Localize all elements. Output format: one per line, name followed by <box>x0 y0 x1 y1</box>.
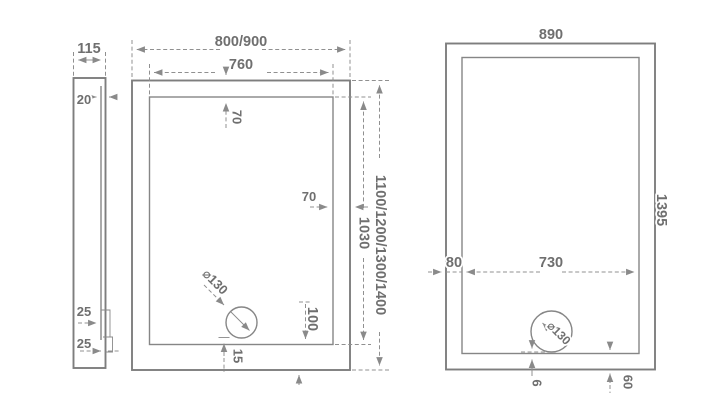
side-profile-view: 115 20 25 25 <box>74 41 121 368</box>
drain-edge-label: 15 <box>230 349 245 363</box>
tray890-outer-length-label: 1395 <box>653 194 669 226</box>
profile-step-upper-label: 25 <box>77 304 91 319</box>
tray890-outer-width-label: 890 <box>539 27 563 43</box>
tray890-outer-outline <box>446 44 655 370</box>
plan-view-890: 890 1395 80 730 ⌀130 6 60 <box>428 27 669 393</box>
profile-step-lower-outline <box>103 337 113 352</box>
drain-diameter-label: ⌀130 <box>200 266 231 297</box>
drain890-diameter-label: ⌀130 <box>544 319 573 348</box>
inner-width-label: 760 <box>229 57 253 73</box>
profile-thickness-label: 20 <box>77 92 91 107</box>
outer-length-label: 1100/1200/1300/1400 <box>372 175 388 315</box>
technical-drawing-canvas: 115 20 25 25 800/900 760 70 70 <box>0 0 711 418</box>
drain-diameter-line <box>231 312 250 331</box>
profile-step-lower-label: 25 <box>77 336 91 351</box>
rim-top-label: 70 <box>229 110 244 124</box>
rim-side-label: 70 <box>302 189 316 204</box>
profile-width-label: 115 <box>77 41 100 57</box>
tray890-inner-width-label: 730 <box>539 255 563 271</box>
drain-gap-label: 6 <box>529 379 544 386</box>
rim-bottom-label: 60 <box>620 375 635 389</box>
inner-length-label: 1030 <box>355 217 371 249</box>
tray890-rim-left-label: 80 <box>446 255 462 271</box>
tray890-inner-outline <box>462 58 639 354</box>
plan-view-main: 800/900 760 70 70 1030 1100/1200/1300/14… <box>132 34 389 385</box>
drain-offset-label: 100 <box>304 307 320 331</box>
outer-width-label: 800/900 <box>215 34 267 50</box>
shower-tray-technical-drawing: 115 20 25 25 800/900 760 70 70 <box>0 0 711 418</box>
